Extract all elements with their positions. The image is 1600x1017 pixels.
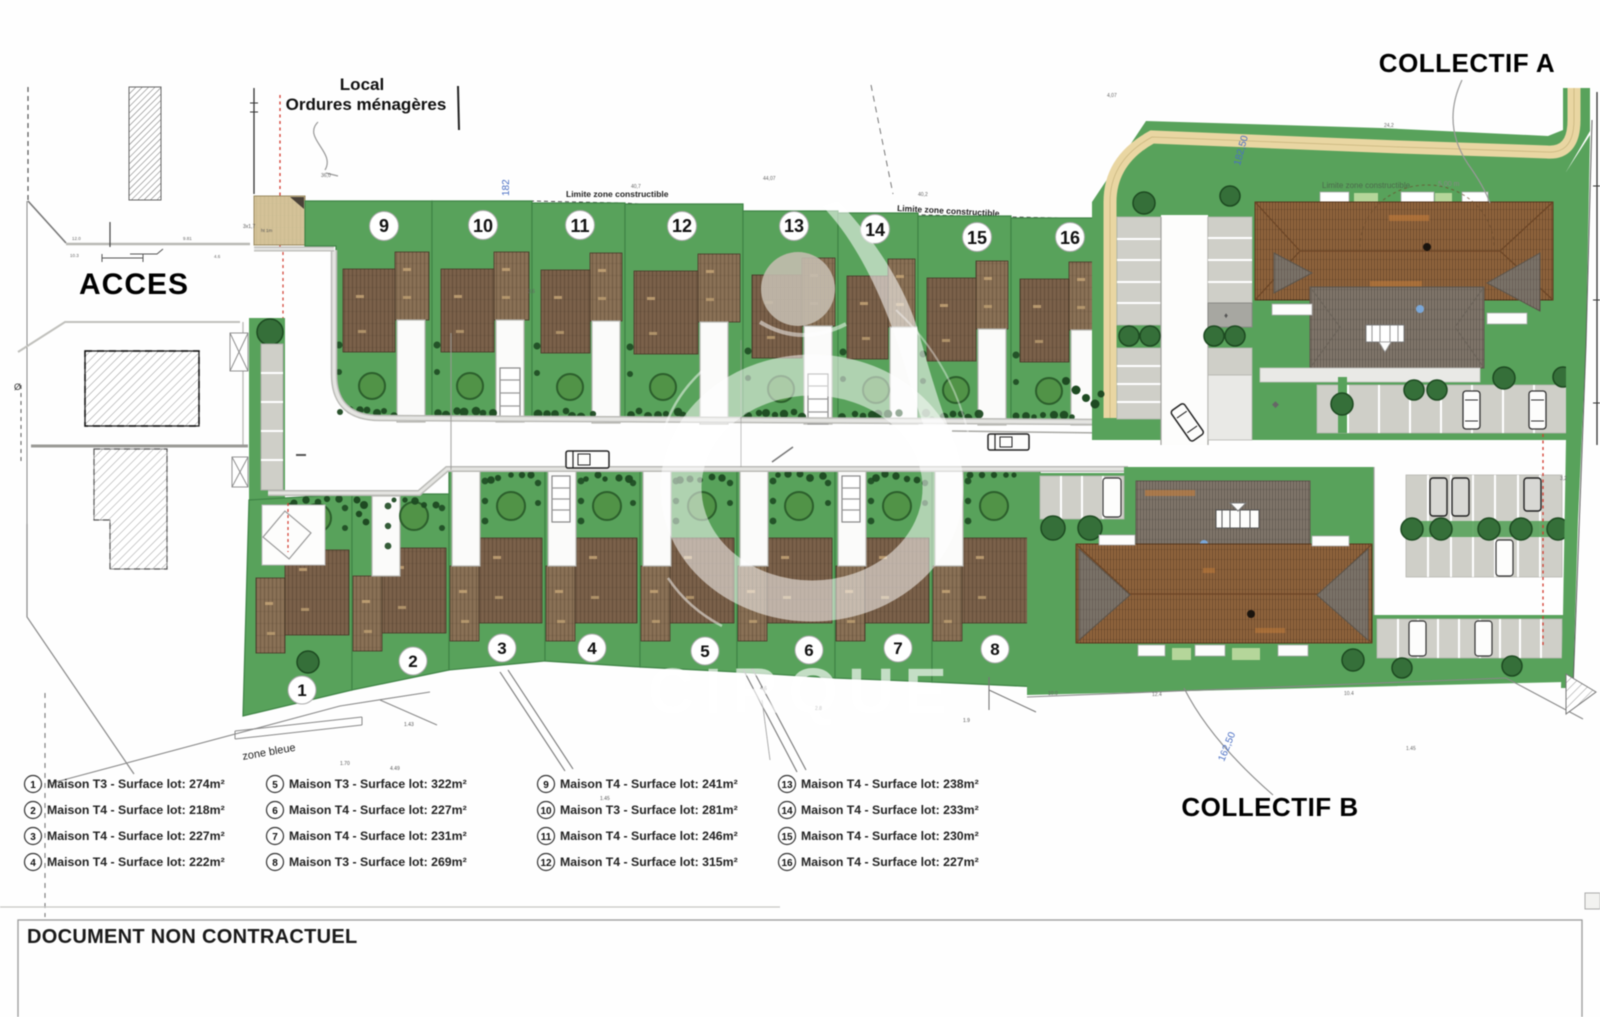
svg-text:◆: ◆ bbox=[1272, 399, 1279, 409]
svg-text:Maison T4 - Surface lot: 218m²: Maison T4 - Surface lot: 218m² bbox=[47, 803, 225, 817]
svg-text:8: 8 bbox=[272, 858, 278, 869]
svg-text:44,07: 44,07 bbox=[763, 176, 776, 182]
svg-text:9.81: 9.81 bbox=[183, 236, 192, 241]
svg-text:13: 13 bbox=[781, 780, 793, 791]
svg-text:Maison T3 - Surface lot: 281m²: Maison T3 - Surface lot: 281m² bbox=[560, 803, 738, 817]
svg-text:COLLECTIF A: COLLECTIF A bbox=[1379, 48, 1555, 78]
svg-text:16: 16 bbox=[781, 858, 793, 869]
svg-text:3: 3 bbox=[30, 832, 36, 843]
svg-text:7: 7 bbox=[272, 832, 278, 843]
svg-text:4: 4 bbox=[587, 639, 597, 658]
svg-text:9: 9 bbox=[543, 780, 549, 791]
svg-text:Ø: Ø bbox=[14, 382, 21, 392]
svg-text:Local: Local bbox=[340, 75, 384, 94]
svg-text:12.0: 12.0 bbox=[72, 236, 81, 241]
svg-text:6: 6 bbox=[272, 806, 278, 817]
svg-text:2: 2 bbox=[408, 652, 417, 671]
svg-text:1: 1 bbox=[297, 681, 306, 700]
svg-text:1: 1 bbox=[30, 780, 36, 791]
svg-text:Ordures ménagères: Ordures ménagères bbox=[286, 95, 447, 114]
svg-text:15: 15 bbox=[967, 228, 987, 248]
svg-text:10.3: 10.3 bbox=[70, 253, 79, 258]
svg-text:40,2: 40,2 bbox=[918, 192, 928, 198]
svg-text:Maison T4 - Surface lot: 238m²: Maison T4 - Surface lot: 238m² bbox=[801, 777, 979, 791]
svg-text:1.43: 1.43 bbox=[404, 722, 414, 728]
svg-text:1.70: 1.70 bbox=[340, 761, 350, 767]
svg-text:♦: ♦ bbox=[1224, 311, 1228, 320]
svg-text:10.0: 10.0 bbox=[1048, 691, 1058, 697]
svg-text:3x1,7: 3x1,7 bbox=[243, 224, 255, 230]
svg-text:Limite zone constructible: Limite zone constructible bbox=[566, 189, 669, 199]
svg-text:Maison T3 - Surface lot: 269m²: Maison T3 - Surface lot: 269m² bbox=[289, 855, 467, 869]
svg-text:10: 10 bbox=[473, 216, 493, 236]
svg-text:15: 15 bbox=[781, 832, 793, 843]
svg-text:3,6: 3,6 bbox=[528, 289, 535, 295]
svg-text:4.6: 4.6 bbox=[214, 254, 221, 259]
svg-text:Maison T4 - Surface lot: 227m²: Maison T4 - Surface lot: 227m² bbox=[289, 803, 467, 817]
svg-text:12: 12 bbox=[672, 216, 692, 236]
svg-text:5: 5 bbox=[272, 780, 278, 791]
svg-text:COLLECTIF B: COLLECTIF B bbox=[1181, 792, 1358, 822]
svg-text:Maison T4 - Surface lot: 227m²: Maison T4 - Surface lot: 227m² bbox=[801, 855, 979, 869]
svg-text:5,00 m: 5,00 m bbox=[1438, 181, 1460, 188]
svg-text:24,2: 24,2 bbox=[1384, 123, 1394, 129]
svg-text:12: 12 bbox=[540, 858, 552, 869]
svg-text:36,0: 36,0 bbox=[321, 173, 331, 179]
svg-text:4,07: 4,07 bbox=[1107, 93, 1117, 99]
svg-text:10: 10 bbox=[540, 806, 552, 817]
svg-text:Maison T4 - Surface lot: 222m²: Maison T4 - Surface lot: 222m² bbox=[47, 855, 225, 869]
svg-text:2: 2 bbox=[30, 806, 36, 817]
svg-text:Maison T3 - Surface lot: 322m²: Maison T3 - Surface lot: 322m² bbox=[289, 777, 467, 791]
svg-text:DOCUMENT NON CONTRACTUEL: DOCUMENT NON CONTRACTUEL bbox=[27, 926, 358, 948]
svg-text:16: 16 bbox=[1060, 228, 1080, 248]
svg-text:12.4: 12.4 bbox=[1152, 692, 1162, 698]
svg-text:Maison T4 - Surface lot: 231m²: Maison T4 - Surface lot: 231m² bbox=[289, 829, 467, 843]
svg-text:CIRQUE: CIRQUE bbox=[648, 655, 957, 727]
svg-text:1.9: 1.9 bbox=[963, 718, 970, 724]
svg-text:1.45: 1.45 bbox=[1406, 746, 1416, 752]
svg-text:Maison T4 - Surface lot: 227m²: Maison T4 - Surface lot: 227m² bbox=[47, 829, 225, 843]
svg-text:3: 3 bbox=[497, 639, 506, 658]
svg-text:Maison T4 - Surface lot: 230m²: Maison T4 - Surface lot: 230m² bbox=[801, 829, 979, 843]
svg-text:8: 8 bbox=[990, 640, 999, 659]
svg-text:4.49: 4.49 bbox=[390, 766, 400, 772]
svg-text:Limite zone constructible: Limite zone constructible bbox=[1322, 181, 1411, 190]
svg-text:9: 9 bbox=[379, 216, 389, 236]
svg-text:Maison T4 - Surface lot: 246m²: Maison T4 - Surface lot: 246m² bbox=[560, 829, 738, 843]
svg-text:14: 14 bbox=[781, 806, 793, 817]
svg-text:13: 13 bbox=[784, 216, 804, 236]
svg-text:3,2: 3,2 bbox=[1560, 476, 1567, 482]
svg-text:ht 1m: ht 1m bbox=[261, 228, 273, 233]
svg-text:4: 4 bbox=[30, 858, 36, 869]
svg-text:10.4: 10.4 bbox=[1344, 691, 1354, 697]
svg-text:ACCES: ACCES bbox=[79, 268, 189, 301]
svg-text:11: 11 bbox=[541, 832, 552, 843]
svg-text:40,7: 40,7 bbox=[631, 184, 641, 190]
svg-text:Maison T4 - Surface lot: 241m²: Maison T4 - Surface lot: 241m² bbox=[560, 777, 738, 791]
svg-text:Maison T3 - Surface lot: 274m²: Maison T3 - Surface lot: 274m² bbox=[47, 777, 225, 791]
svg-text:182: 182 bbox=[501, 179, 512, 196]
svg-text:Maison T4 - Surface lot: 233m²: Maison T4 - Surface lot: 233m² bbox=[801, 803, 979, 817]
svg-text:11: 11 bbox=[570, 216, 589, 236]
svg-text:Maison T4 - Surface lot: 315m²: Maison T4 - Surface lot: 315m² bbox=[560, 855, 738, 869]
svg-text:1.45: 1.45 bbox=[600, 796, 610, 802]
